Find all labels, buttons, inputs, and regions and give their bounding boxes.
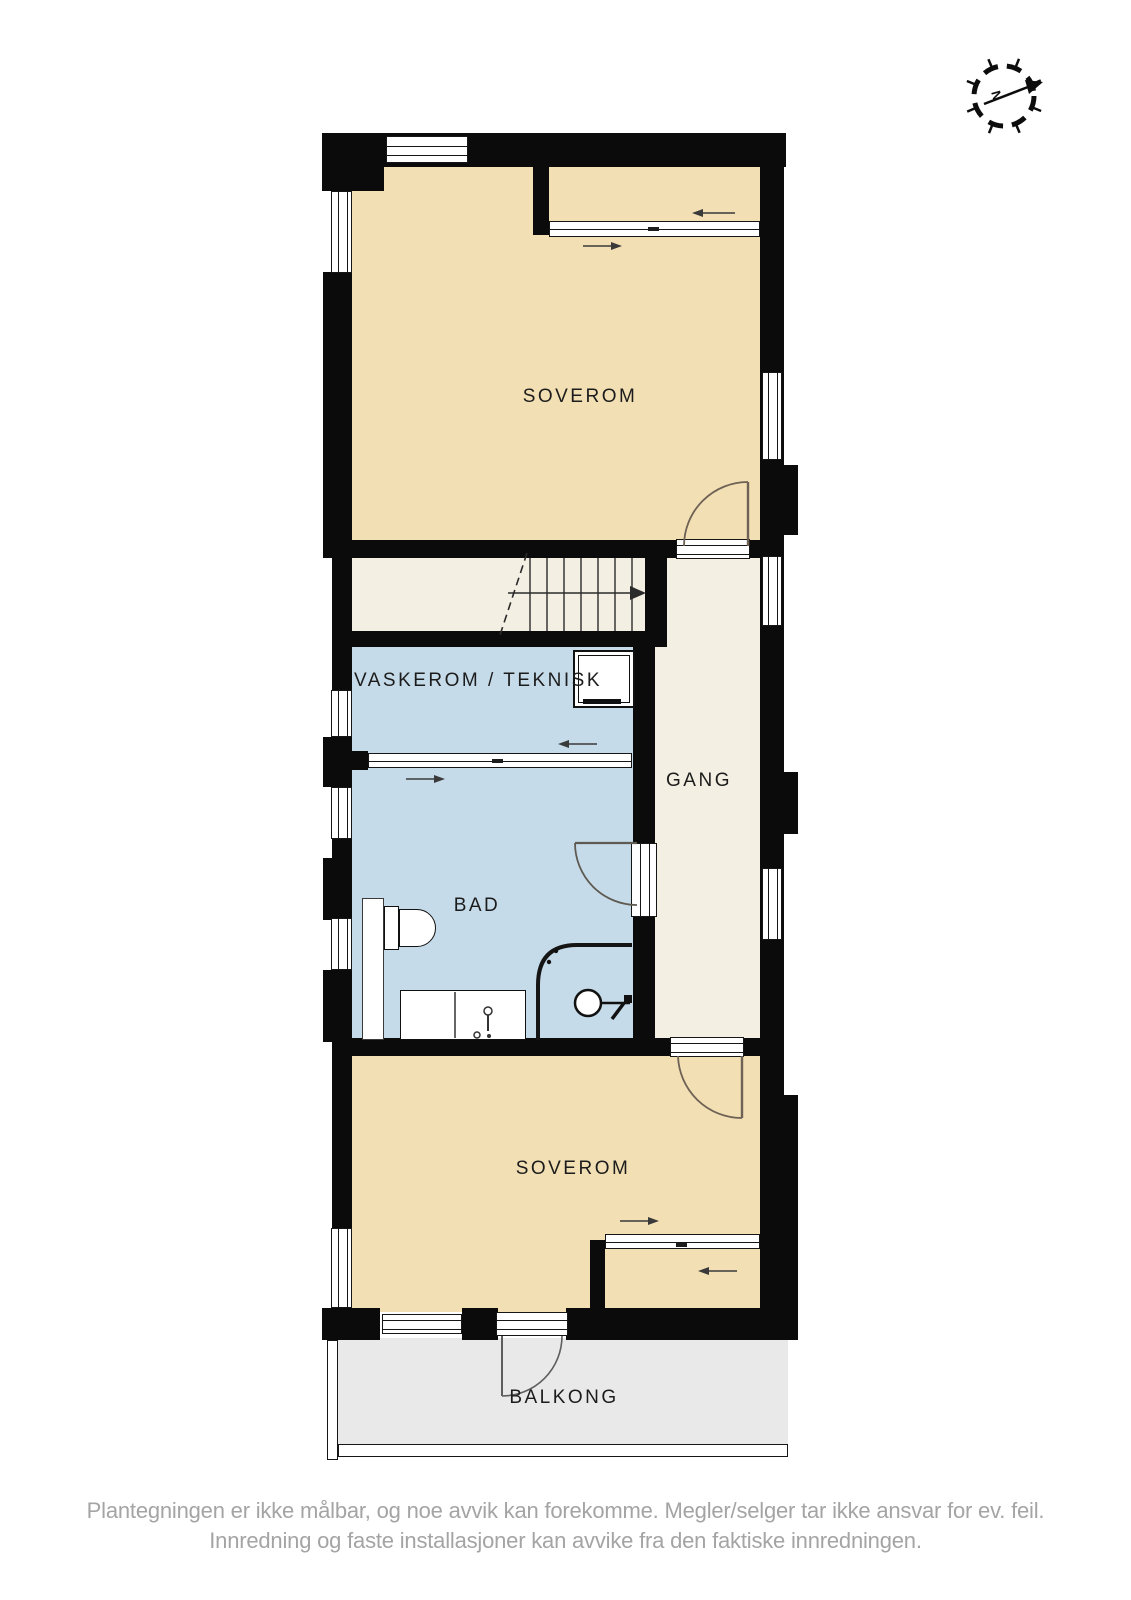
compass-north-label: N <box>988 89 1005 102</box>
balcony-rail-bottom <box>338 1444 788 1457</box>
wall-slider-stub-left <box>352 751 368 770</box>
vanity-sink <box>400 990 526 1040</box>
wall-left-pier-4 <box>323 970 352 1042</box>
label-vaskerom: VASKEROM / TEKNISK <box>354 670 602 692</box>
wall-bottom-right-corner <box>714 1308 798 1340</box>
sliding-door-tick-1 <box>648 227 659 231</box>
door-frame-soverom-bottom <box>670 1037 744 1057</box>
window-right-2 <box>762 556 782 626</box>
wall-right-pier-3 <box>760 1095 798 1312</box>
disclaimer-line-2: Innredning og faste installasjoner kan a… <box>0 1526 1131 1556</box>
wall-left-pier-3 <box>323 858 352 920</box>
balcony-rail-left <box>327 1340 338 1460</box>
disclaimer-text: Plantegningen er ikke målbar, og noe avv… <box>0 1496 1131 1556</box>
door-frame-bad <box>631 843 657 917</box>
wall-bottom-seg-1 <box>462 1308 498 1340</box>
wall-bottom-left-corner <box>322 1308 380 1340</box>
wall-soverom-stairs <box>352 540 676 558</box>
bathroom-counter <box>362 898 384 1040</box>
toilet-cistern <box>384 906 399 950</box>
door-frame-soverom-top <box>676 539 750 559</box>
window-bottom-wall <box>382 1314 462 1334</box>
label-balkong: BALKONG <box>509 1387 618 1409</box>
label-soverom-top: SOVEROM <box>523 386 638 408</box>
disclaimer-line-1: Plantegningen er ikke målbar, og noe avv… <box>0 1496 1131 1526</box>
wall-closet-stub-bottom <box>590 1240 605 1312</box>
sliding-door-tick-2 <box>492 759 503 763</box>
window-left-3 <box>331 787 352 839</box>
label-gang: GANG <box>666 770 732 792</box>
window-right-1 <box>762 372 782 460</box>
floor-plan-canvas: SOVEROM VASKEROM / TEKNISK GANG BAD SOVE… <box>0 0 1131 1600</box>
wall-right-pier-1 <box>760 465 798 535</box>
window-left-1 <box>331 191 352 273</box>
window-left-5 <box>331 1228 352 1308</box>
wall-gang-left-a <box>633 647 655 843</box>
label-soverom-bottom: SOVEROM <box>516 1158 631 1180</box>
wall-soverom-stairs-right <box>750 540 762 558</box>
wall-stairs-vaskerom <box>352 631 645 647</box>
wall-right-pier-2 <box>760 772 798 834</box>
wall-gang-upper-left <box>645 540 667 647</box>
technical-cabinet-base <box>583 699 621 704</box>
window-top-wall <box>386 136 468 163</box>
wall-closet-stub-top <box>533 165 549 235</box>
toilet-bowl <box>399 909 436 947</box>
wall-left-pier-1 <box>323 272 352 558</box>
window-left-2 <box>331 690 352 737</box>
wall-bad-soverom-right <box>744 1038 760 1056</box>
wall-gang-left-b <box>633 917 655 1040</box>
wall-left-pier-2 <box>323 737 352 787</box>
door-frame-balcony <box>496 1312 568 1336</box>
window-left-4 <box>331 918 352 970</box>
compass-needle-head <box>1025 80 1043 94</box>
wall-bad-soverom <box>352 1038 670 1056</box>
wall-bottom-seg-2 <box>566 1308 714 1340</box>
label-bad: BAD <box>454 895 501 917</box>
sliding-door-tick-3 <box>676 1243 687 1247</box>
window-right-3 <box>762 868 782 940</box>
compass-icon <box>967 59 1043 133</box>
